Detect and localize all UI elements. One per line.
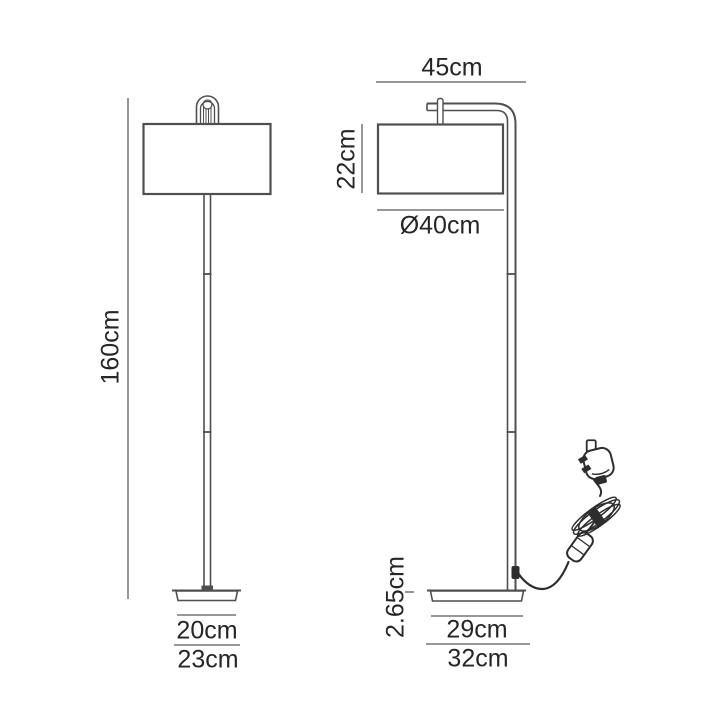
label-base-inner-depth: 29cm (446, 618, 507, 643)
lamp-shade-front (144, 124, 271, 194)
floor-lamp-front-view (144, 96, 271, 601)
cord-lower-run (518, 562, 569, 589)
plug-body (581, 446, 615, 481)
power-plug-icon (574, 435, 617, 488)
inline-switch (565, 530, 596, 564)
label-base-inner-width: 20cm (176, 619, 237, 644)
lamp-dimension-diagram: 160cm 20cm 23cm 45cm 22cm Ø40cm 2.65cm 2… (0, 0, 728, 728)
lamp-shade-side (378, 125, 503, 194)
label-base-outer-width: 23cm (177, 648, 238, 673)
label-arm-depth: 45cm (421, 56, 482, 81)
floor-lamp-side-view (378, 99, 625, 602)
power-cord-assembly (518, 435, 625, 589)
label-base-thickness: 2.65cm (384, 556, 409, 638)
label-total-height: 160cm (99, 309, 124, 384)
shade-hanger-stub (438, 99, 444, 125)
label-shade-diameter: Ø40cm (400, 214, 481, 239)
cable-coil (568, 493, 624, 541)
base-body-front (176, 591, 238, 601)
label-shade-height: 22cm (335, 128, 360, 189)
label-base-outer-depth: 32cm (447, 647, 508, 672)
base-body-side (431, 591, 524, 601)
